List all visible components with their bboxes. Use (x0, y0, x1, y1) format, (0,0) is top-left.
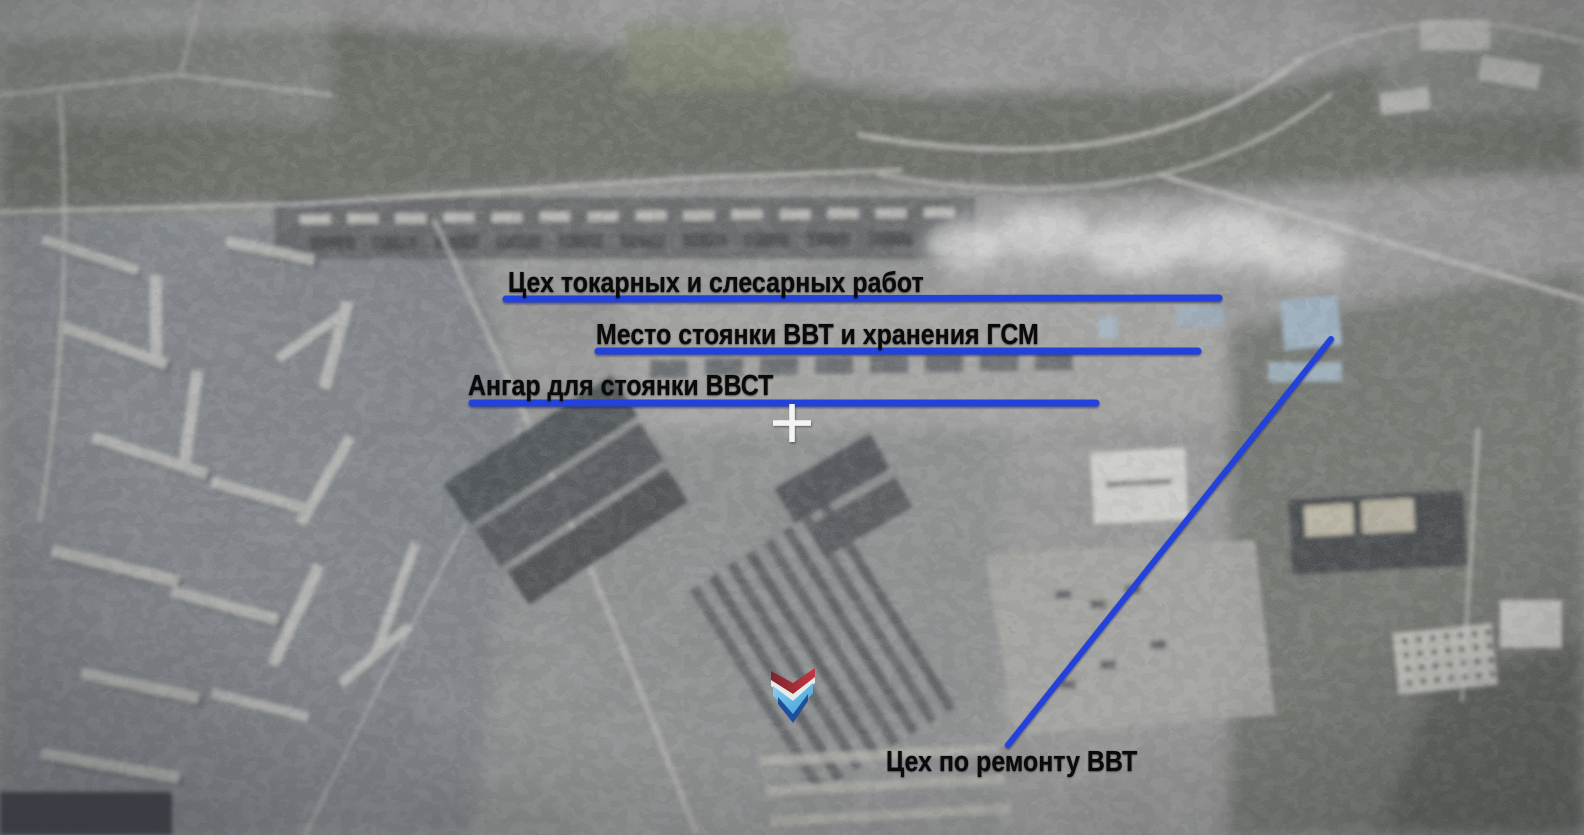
label-vvt-repair-shop: Цех по ремонту ВВТ (886, 747, 1137, 777)
label-vvt-parking-and-fuel-storage: Место стоянки ВВТ и хранения ГСМ (596, 320, 1039, 350)
chevron-emblem-icon (770, 666, 816, 724)
surveillance-frame: Цех токарных и слесарных работ Место сто… (0, 0, 1584, 835)
bottom-left-blur-patch (0, 792, 172, 835)
label-vvst-parking-hangar: Ангар для стоянки ВВСТ (468, 371, 773, 401)
label-lathe-and-metalwork-shop: Цех токарных и слесарных работ (508, 268, 924, 298)
